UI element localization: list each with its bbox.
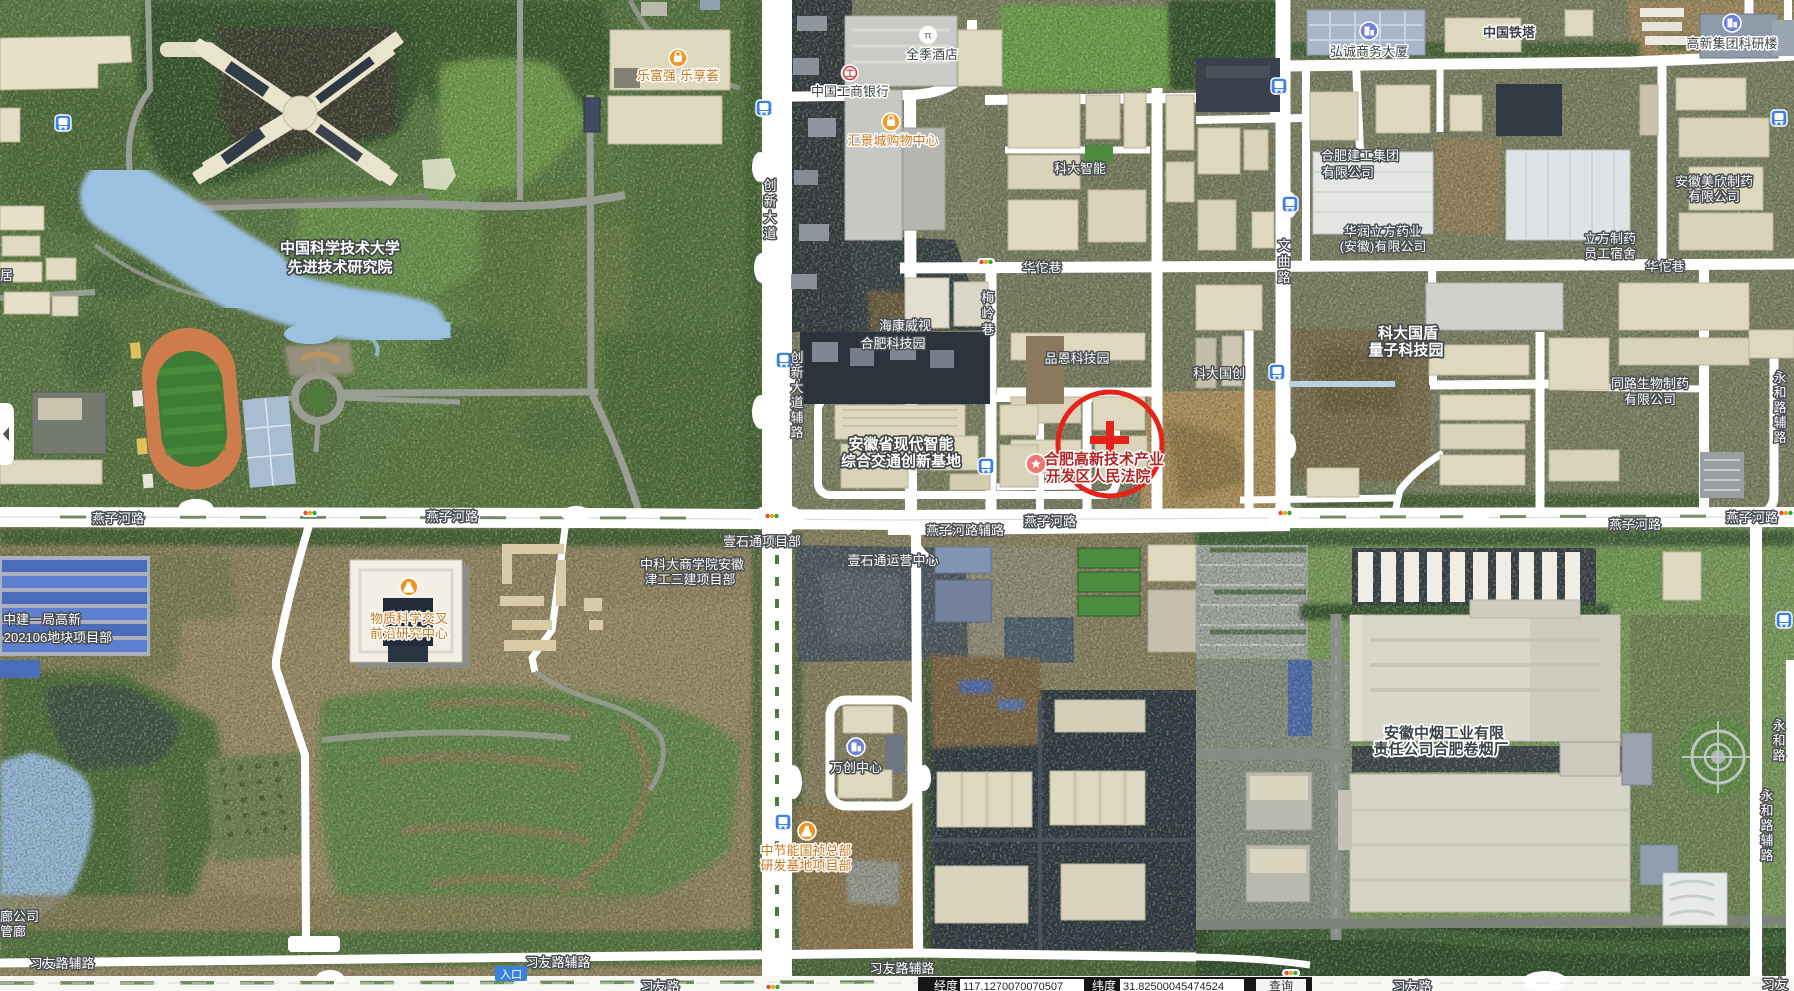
- svg-text:路: 路: [1773, 400, 1786, 415]
- svg-text:同路生物制药: 同路生物制药: [1611, 376, 1689, 391]
- svg-text:(安徽)有限公司: (安徽)有限公司: [1340, 239, 1427, 254]
- svg-text:量子科技园: 量子科技园: [1368, 341, 1443, 359]
- svg-text:经度: 经度: [934, 978, 958, 991]
- svg-text:弘诚商务大厦: 弘诚商务大厦: [1330, 44, 1408, 59]
- svg-text:壹石通项目部: 壹石通项目部: [723, 534, 801, 549]
- svg-text:和: 和: [1772, 733, 1785, 748]
- svg-text:入口: 入口: [500, 969, 522, 981]
- svg-text:117.1270070070507: 117.1270070070507: [963, 981, 1063, 991]
- svg-text:居: 居: [0, 268, 13, 283]
- svg-text:燕子河路: 燕子河路: [426, 509, 478, 524]
- svg-text:习友路辅路: 习友路辅路: [525, 955, 590, 970]
- svg-text:乐富强·乐享荟: 乐富强·乐享荟: [637, 68, 719, 83]
- svg-text:先进技术研究院: 先进技术研究院: [287, 258, 392, 276]
- svg-text:全季酒店: 全季酒店: [906, 47, 958, 62]
- svg-text:中建一局高新: 中建一局高新: [3, 612, 81, 627]
- svg-text:研发基地项目部: 研发基地项目部: [760, 858, 851, 873]
- svg-text:中国科学技术大学: 中国科学技术大学: [280, 239, 400, 257]
- svg-text:永: 永: [1772, 718, 1785, 733]
- svg-text:辅: 辅: [1773, 415, 1786, 430]
- svg-text:梅: 梅: [981, 290, 994, 305]
- svg-text:科大国盾: 科大国盾: [1378, 324, 1438, 342]
- svg-text:合肥科技园: 合肥科技园: [860, 336, 925, 351]
- svg-text:永: 永: [1773, 370, 1786, 385]
- svg-text:华佗巷: 华佗巷: [1022, 260, 1061, 275]
- svg-text:辅: 辅: [1760, 833, 1773, 848]
- svg-text:路: 路: [1773, 430, 1786, 445]
- svg-text:安徽美欣制药: 安徽美欣制药: [1675, 174, 1753, 189]
- svg-text:中国工商银行: 中国工商银行: [811, 84, 889, 99]
- svg-text:永: 永: [1760, 788, 1773, 803]
- svg-text:中科大商学院安徽: 中科大商学院安徽: [640, 557, 744, 572]
- svg-text:大: 大: [790, 380, 803, 395]
- svg-text:路: 路: [1760, 848, 1773, 863]
- svg-text:和: 和: [1760, 803, 1773, 818]
- svg-text:高新集团科研楼: 高新集团科研楼: [1686, 36, 1777, 51]
- svg-text:燕子河路: 燕子河路: [1024, 514, 1076, 529]
- svg-text:立方制药: 立方制药: [1584, 231, 1636, 246]
- svg-text:燕子河路: 燕子河路: [92, 511, 144, 526]
- svg-text:路: 路: [1772, 748, 1785, 763]
- svg-text:科大智能: 科大智能: [1054, 161, 1106, 176]
- svg-text:有限公司: 有限公司: [1322, 165, 1374, 180]
- svg-text:道: 道: [763, 226, 776, 241]
- svg-text:习友路辅路: 习友路辅路: [869, 961, 934, 976]
- svg-text:中节能国祯总部: 中节能国祯总部: [760, 843, 851, 858]
- svg-text:壹石通运营中心: 壹石通运营中心: [847, 553, 938, 568]
- svg-text:合肥高新技术产业: 合肥高新技术产业: [1043, 450, 1164, 468]
- svg-text:有限公司: 有限公司: [1624, 392, 1676, 407]
- svg-text:202106地块项目部: 202106地块项目部: [4, 630, 112, 645]
- svg-text:燕子河路辅路: 燕子河路辅路: [926, 523, 1004, 538]
- svg-text:31.82500045474524: 31.82500045474524: [1123, 981, 1224, 991]
- svg-text:有限公司: 有限公司: [1688, 189, 1740, 204]
- svg-text:巷: 巷: [981, 322, 994, 337]
- svg-text:开发区人民法院: 开发区人民法院: [1045, 467, 1150, 485]
- svg-text:岭: 岭: [981, 306, 994, 321]
- svg-text:前沿研究中心: 前沿研究中心: [370, 626, 448, 641]
- svg-text:大: 大: [763, 210, 776, 225]
- svg-text:习友路: 习友路: [1392, 979, 1431, 991]
- svg-text:汇景城购物中心: 汇景城购物中心: [847, 133, 938, 148]
- svg-text:习友: 习友: [1762, 977, 1788, 991]
- svg-text:查询: 查询: [1269, 979, 1293, 991]
- svg-text:文: 文: [1277, 238, 1290, 253]
- svg-text:安徽省现代智能: 安徽省现代智能: [848, 435, 953, 453]
- svg-text:综合交通创新基地: 综合交通创新基地: [841, 452, 961, 470]
- svg-text:和: 和: [1773, 385, 1786, 400]
- svg-text:创: 创: [790, 350, 803, 365]
- svg-text:习友路: 习友路: [640, 979, 679, 991]
- svg-text:廊公司: 廊公司: [0, 909, 39, 924]
- svg-text:辅: 辅: [790, 410, 803, 425]
- svg-text:中国铁塔: 中国铁塔: [1483, 25, 1536, 40]
- svg-text:路: 路: [1760, 818, 1773, 833]
- svg-text:责任公司合肥卷烟厂: 责任公司合肥卷烟厂: [1373, 740, 1508, 758]
- svg-text:品恩科技园: 品恩科技园: [1044, 351, 1109, 366]
- svg-text:纬度: 纬度: [1092, 978, 1116, 991]
- svg-text:路: 路: [1277, 270, 1290, 285]
- svg-text:员工宿舍: 员工宿舍: [1584, 246, 1636, 261]
- svg-text:津工三建项目部: 津工三建项目部: [644, 572, 735, 587]
- svg-text:安徽中烟工业有限: 安徽中烟工业有限: [1384, 724, 1504, 742]
- svg-text:习友路辅路: 习友路辅路: [29, 956, 94, 971]
- svg-text:燕子河路: 燕子河路: [1726, 510, 1778, 525]
- svg-text:华润立方药业: 华润立方药业: [1344, 224, 1422, 239]
- svg-text:合肥建工集团: 合肥建工集团: [1321, 148, 1399, 163]
- svg-text:曲: 曲: [1277, 254, 1290, 269]
- svg-text:道: 道: [790, 395, 803, 410]
- svg-text:新: 新: [763, 194, 776, 209]
- svg-text:海康威视: 海康威视: [879, 318, 931, 333]
- svg-text:路: 路: [790, 425, 803, 440]
- svg-text:新: 新: [790, 365, 803, 380]
- svg-text:管廊: 管廊: [0, 924, 26, 939]
- svg-text:万创中心: 万创中心: [830, 760, 882, 775]
- svg-text:创: 创: [763, 178, 776, 193]
- svg-text:燕子河路: 燕子河路: [1609, 517, 1661, 532]
- svg-text:华佗巷: 华佗巷: [1645, 259, 1684, 274]
- svg-text:物质科学交叉: 物质科学交叉: [370, 611, 448, 626]
- svg-text:科大国创: 科大国创: [1193, 366, 1245, 381]
